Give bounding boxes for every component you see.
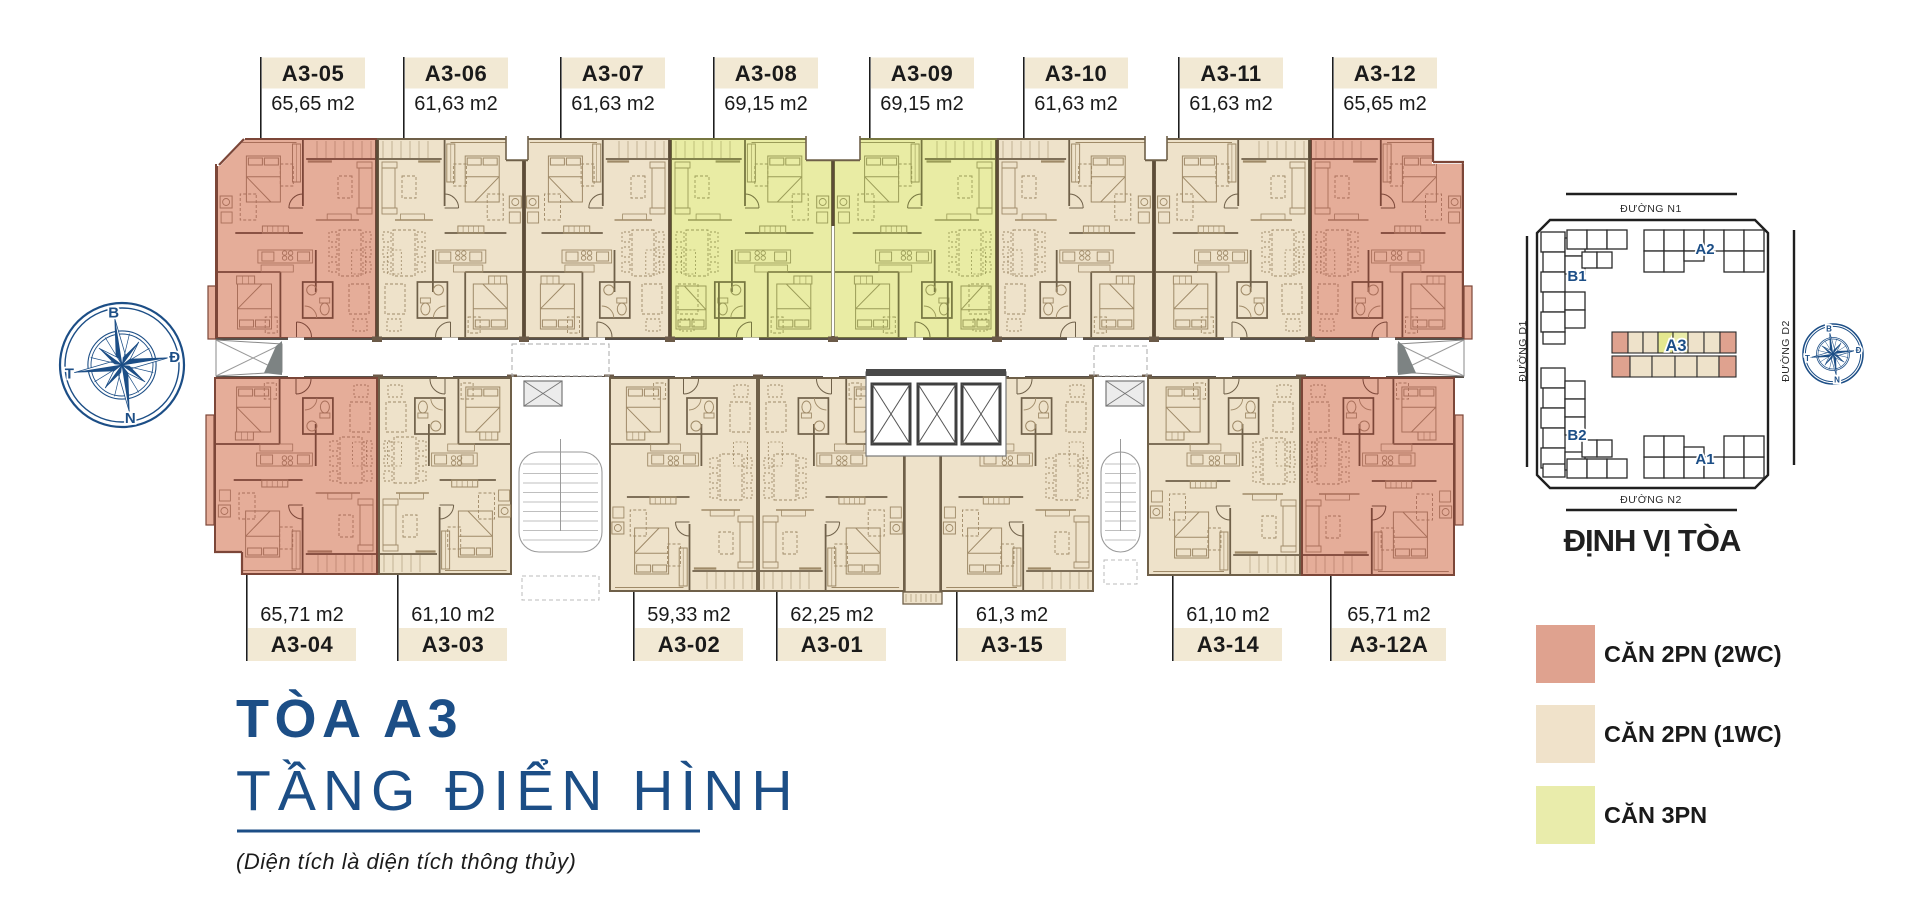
svg-text:A3-07: A3-07: [582, 61, 644, 86]
svg-text:A3-11: A3-11: [1200, 61, 1261, 86]
svg-text:69,15 m2: 69,15 m2: [724, 93, 807, 115]
svg-text:T: T: [65, 366, 74, 383]
svg-text:Đ: Đ: [1856, 346, 1862, 355]
svg-text:65,71 m2: 65,71 m2: [260, 604, 343, 626]
svg-text:N: N: [1834, 375, 1840, 384]
svg-text:A3-14: A3-14: [1197, 632, 1260, 657]
svg-text:CĂN 2PN (2WC): CĂN 2PN (2WC): [1604, 640, 1782, 667]
svg-text:CĂN 2PN (1WC): CĂN 2PN (1WC): [1604, 720, 1782, 747]
svg-text:T: T: [1805, 354, 1810, 363]
svg-text:A3-06: A3-06: [425, 61, 487, 86]
svg-text:A3-08: A3-08: [735, 61, 797, 86]
svg-text:B: B: [108, 305, 119, 322]
svg-text:TÒA A3: TÒA A3: [236, 689, 463, 749]
svg-text:A3-01: A3-01: [801, 632, 863, 657]
svg-text:A3-12: A3-12: [1354, 61, 1416, 86]
svg-text:65,65 m2: 65,65 m2: [271, 93, 354, 115]
svg-text:A3-09: A3-09: [891, 61, 953, 86]
svg-text:A2: A2: [1695, 241, 1714, 258]
svg-text:A3-15: A3-15: [981, 632, 1043, 657]
svg-text:65,71 m2: 65,71 m2: [1347, 604, 1430, 626]
svg-text:N: N: [125, 410, 136, 427]
svg-text:A1: A1: [1695, 451, 1714, 468]
svg-text:B: B: [1826, 324, 1832, 333]
svg-text:A3-12A: A3-12A: [1350, 632, 1429, 657]
svg-text:ĐƯỜNG N2: ĐƯỜNG N2: [1620, 493, 1682, 506]
svg-text:A3-05: A3-05: [282, 61, 344, 86]
svg-text:61,10 m2: 61,10 m2: [1186, 604, 1269, 626]
svg-text:ĐƯỜNG N1: ĐƯỜNG N1: [1620, 202, 1682, 215]
svg-text:A3-03: A3-03: [422, 632, 484, 657]
svg-text:A3-04: A3-04: [271, 632, 334, 657]
svg-text:B1: B1: [1567, 268, 1586, 285]
svg-text:61,3 m2: 61,3 m2: [976, 604, 1048, 626]
svg-text:A3-10: A3-10: [1045, 61, 1107, 86]
svg-text:59,33 m2: 59,33 m2: [647, 604, 730, 626]
svg-text:69,15 m2: 69,15 m2: [880, 93, 963, 115]
svg-text:61,63 m2: 61,63 m2: [414, 93, 497, 115]
svg-text:65,65 m2: 65,65 m2: [1343, 93, 1426, 115]
svg-text:Đ: Đ: [169, 349, 180, 366]
svg-text:ĐƯỜNG D2: ĐƯỜNG D2: [1779, 320, 1792, 382]
svg-text:A3-02: A3-02: [658, 632, 720, 657]
svg-text:ĐỊNH VỊ TÒA: ĐỊNH VỊ TÒA: [1564, 522, 1741, 558]
svg-text:61,10 m2: 61,10 m2: [411, 604, 494, 626]
svg-text:A3: A3: [1665, 337, 1686, 355]
svg-text:CĂN 3PN: CĂN 3PN: [1604, 801, 1707, 828]
svg-text:61,63 m2: 61,63 m2: [1189, 93, 1272, 115]
svg-text:61,63 m2: 61,63 m2: [1034, 93, 1117, 115]
svg-text:(Diện tích là diện tích thông: (Diện tích là diện tích thông thủy): [236, 849, 576, 874]
svg-text:61,63 m2: 61,63 m2: [571, 93, 654, 115]
svg-text:B2: B2: [1567, 427, 1586, 444]
svg-text:62,25 m2: 62,25 m2: [790, 604, 873, 626]
svg-text:TẦNG ĐIỂN HÌNH: TẦNG ĐIỂN HÌNH: [236, 758, 800, 823]
svg-text:ĐƯỜNG D1: ĐƯỜNG D1: [1516, 320, 1529, 382]
